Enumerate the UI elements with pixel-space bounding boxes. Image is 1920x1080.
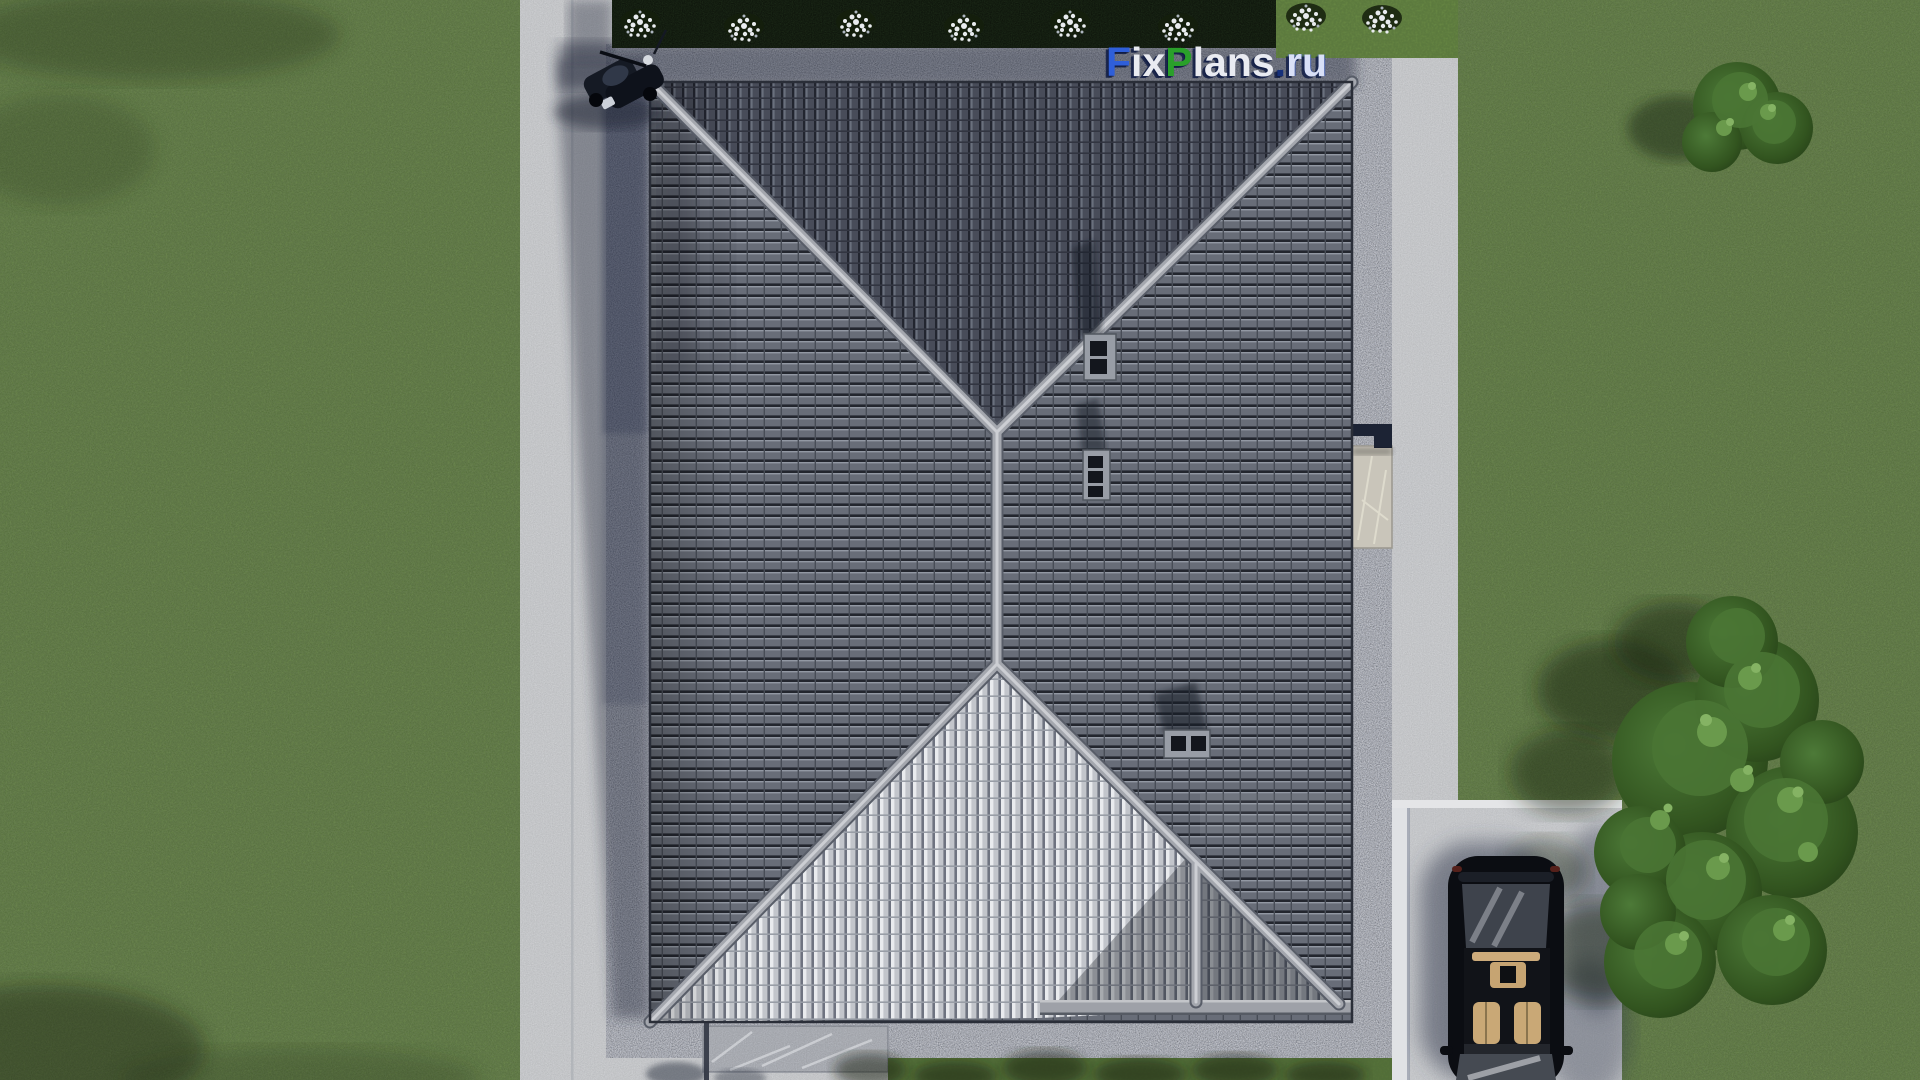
chimney [1084,334,1116,380]
scene-canvas [0,0,1920,1080]
watermark-letters-ru: ru [1286,39,1327,85]
taillight [1550,866,1560,872]
chimney [1083,450,1110,500]
house-roof [650,82,1352,1022]
watermark-letter-p: P [1165,39,1192,85]
watermark-dot: . [1275,39,1286,85]
aerial-render: FixPlans.ru [0,0,1920,1080]
watermark-letters-lans: lans [1193,39,1275,85]
car [1420,842,1573,1080]
driveway-side-wall [1392,808,1409,1080]
fixplans-watermark: FixPlans.ru [1106,40,1327,86]
taillight [1452,866,1462,872]
car-mirror [1560,1046,1573,1055]
chimney [1164,730,1210,758]
car-mirror [1440,1046,1453,1055]
watermark-letters-ix: ix [1131,39,1165,85]
watermark-letter-f: F [1106,39,1131,85]
